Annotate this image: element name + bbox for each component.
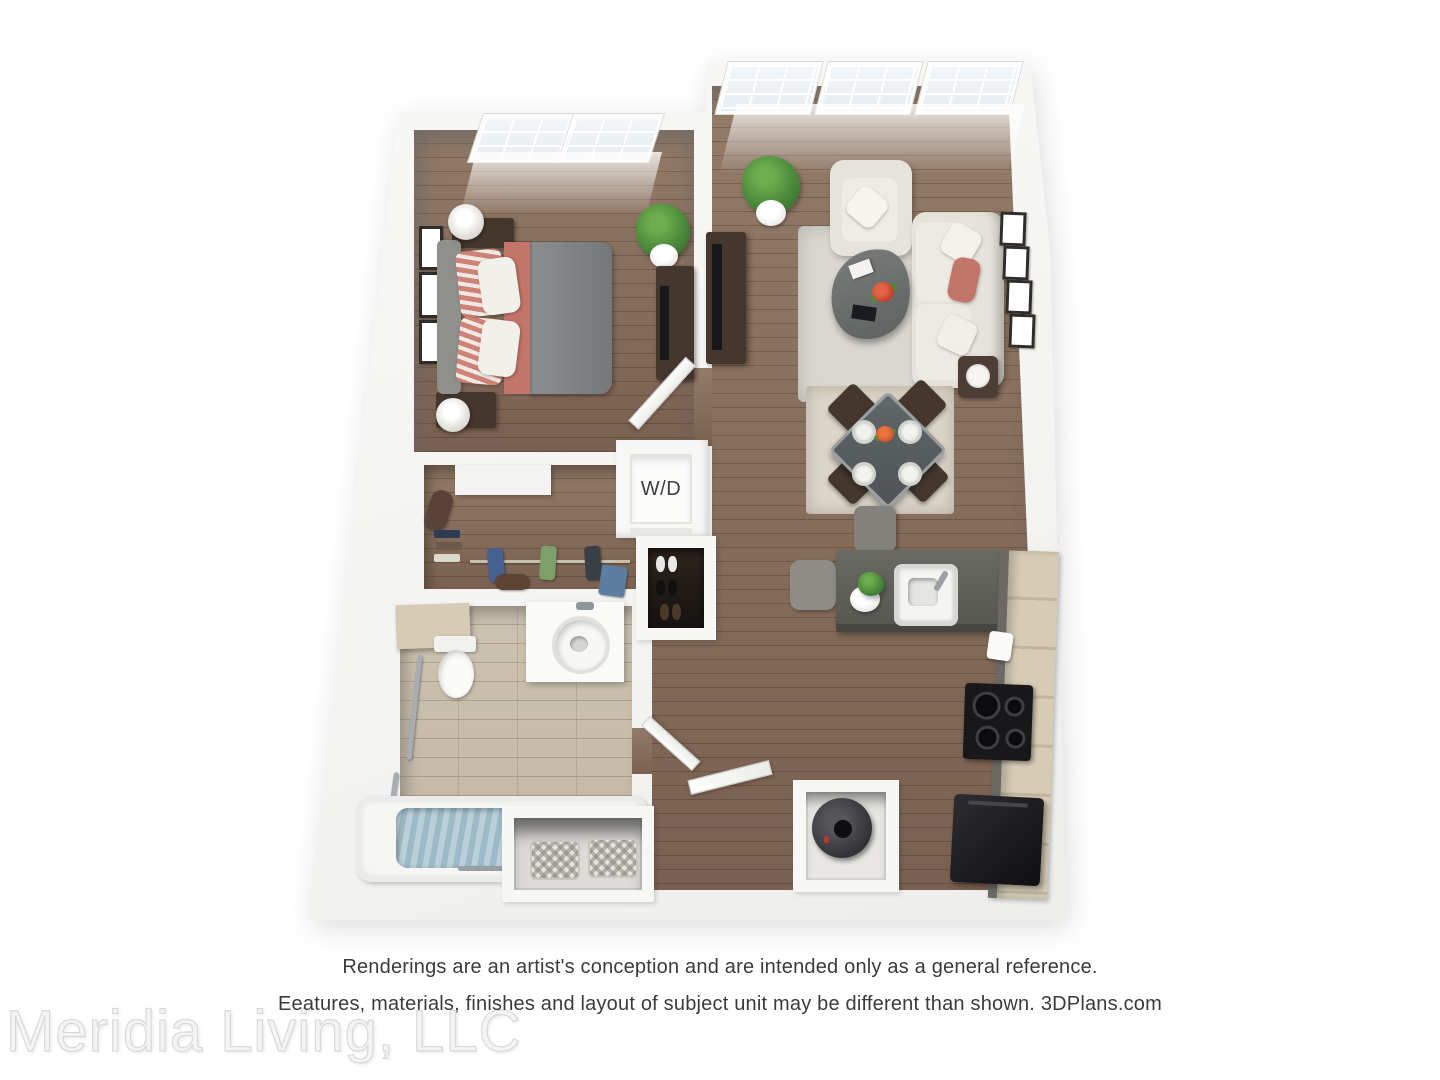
table-lamp [436,398,470,432]
floorplan-page: Meridia Living, LLC [0,0,1440,1080]
living-room-window [816,62,923,114]
disclaimer-line-1: Renderings are an artist's conception an… [0,956,1440,979]
shoe [672,604,681,620]
refrigerator [950,794,1044,887]
flower-centerpiece [876,426,894,442]
living-room-window [916,62,1023,114]
fridge-handle [968,800,1028,807]
living-room-window [716,62,823,114]
water-heater-cap [834,820,852,838]
coffee-maker [986,630,1014,661]
bar-stool [790,560,836,610]
burner [972,691,1001,720]
bedroom-tv [660,286,669,360]
bedroom-window [558,114,664,162]
folded-clothes [434,530,460,538]
white-pillow [476,256,521,317]
place-setting [852,462,876,486]
hanging-clothes [584,545,602,580]
counter-plant [858,572,884,596]
sink-drain [570,636,588,652]
place-setting [898,420,922,444]
tray [966,364,990,388]
water-heater-valve [824,836,829,843]
place-setting [852,420,876,444]
sink-basin [908,578,938,606]
place-setting [898,462,922,486]
duffel-bag [495,574,529,590]
burner [975,725,1000,750]
storage-basket [588,838,638,878]
picture-frame [1002,246,1029,281]
bar-stool [854,506,896,552]
picture-frame [1008,314,1035,349]
stove-cooktop [963,683,1034,761]
burner [1005,728,1026,749]
toilet [438,650,474,698]
flower-vase [872,282,894,302]
laundry-closet-door [630,528,692,536]
shoe [668,580,677,596]
bedroom-door-threshold [694,368,712,446]
plant-pot [756,200,786,226]
folded-clothes [434,554,460,562]
folded-clothes [436,542,462,550]
shoe [668,556,677,572]
bed-duvet [528,242,612,394]
closet-shelf [455,465,551,495]
shoe [660,604,669,620]
bedroom-window [468,114,574,162]
picture-frame [1005,280,1032,315]
bathroom-door-threshold [632,728,652,774]
storage-basket [530,840,580,880]
folded-jeans [598,564,628,597]
white-pillow [477,318,522,378]
floorplan-rendering: W/D [0,0,1440,1080]
table-lamp [448,204,484,240]
disclaimer-line-2: Eeatures, materials, finishes and layout… [0,993,1440,1016]
shoe [656,580,665,596]
hanging-clothes [539,545,557,580]
burner [1004,696,1025,717]
picture-frame [999,212,1026,247]
bathroom-faucet [576,602,594,610]
washer-dryer-label: W/D [630,454,692,524]
living-room-tv [712,244,722,350]
plant-pot [650,244,678,268]
shoe [656,556,665,572]
